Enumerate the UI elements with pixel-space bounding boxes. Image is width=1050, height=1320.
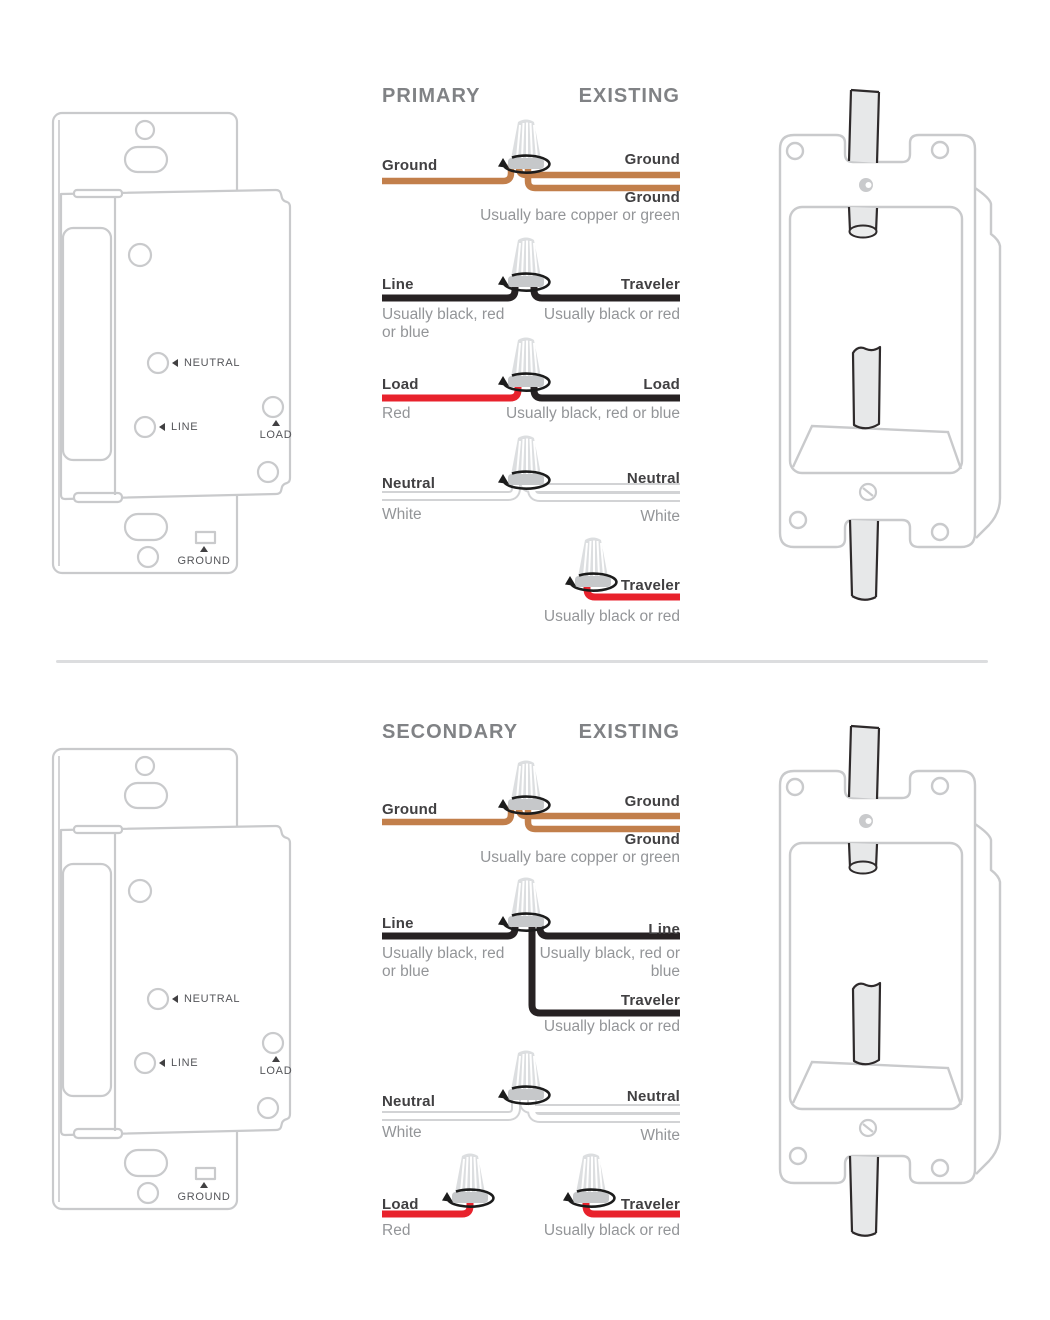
switch-load-terminal-label: LOAD — [256, 1056, 296, 1077]
wire-nut-icon — [442, 1154, 493, 1207]
arrow-up-icon — [200, 546, 208, 552]
electrical-box-illustration — [752, 724, 1012, 1254]
ground-left-label: Ground — [382, 801, 437, 818]
arrow-left-icon — [172, 359, 178, 367]
switch-line-terminal-label: LINE — [159, 421, 198, 433]
wire-nut-icon — [498, 761, 549, 814]
neutral-right-sub: White — [640, 1127, 680, 1145]
ground-sub-label: Usually bare copper or green — [480, 207, 680, 225]
neutral-left-label: Neutral — [382, 475, 435, 492]
ground-right-bottom-label: Ground — [625, 189, 680, 206]
wire-nut-icon — [498, 436, 549, 489]
traveler-right-label: Traveler — [621, 276, 680, 293]
neutral-right-sub: White — [640, 508, 680, 526]
arrow-left-icon — [172, 995, 178, 1003]
line-left-label: Line — [382, 276, 414, 293]
ground-right-top-label: Ground — [625, 151, 680, 168]
line-left-sub: Usually black, red or blue — [382, 306, 517, 342]
load-left-sub: Red — [382, 405, 410, 423]
switch-neutral-terminal-label: NEUTRAL — [172, 993, 240, 1005]
arrow-left-icon — [159, 423, 165, 431]
wire-nut-icon — [498, 238, 549, 291]
ground-right-top-label: Ground — [625, 793, 680, 810]
switch-ground-terminal-label: GROUND — [176, 546, 232, 567]
arrow-up-icon — [272, 420, 280, 426]
arrow-up-icon — [200, 1182, 208, 1188]
arrow-up-icon — [272, 1056, 280, 1062]
wire-nut-icon — [498, 120, 549, 173]
switch-line-terminal-label: LINE — [159, 1057, 198, 1069]
traveler-branch-label: Traveler — [621, 992, 680, 1009]
switch-ground-terminal-label: GROUND — [176, 1182, 232, 1203]
neutral-right-label: Neutral — [627, 470, 680, 487]
traveler-cap-label: Traveler — [621, 577, 680, 594]
wire-nut-icon — [563, 1154, 614, 1207]
line-left-label: Line — [382, 915, 414, 932]
neutral-terminal-text: NEUTRAL — [184, 993, 240, 1005]
load-right-label: Load — [643, 376, 680, 393]
traveler-cap-sub: Usually black or red — [544, 608, 680, 626]
electrical-box-illustration — [752, 88, 1012, 618]
load-cap-label: Load — [382, 1196, 419, 1213]
wire-nut-icon — [565, 538, 616, 591]
neutral-left-label: Neutral — [382, 1093, 435, 1110]
section-divider — [56, 660, 988, 663]
secondary-wiring-diagram: SECONDARY EXISTING — [382, 721, 680, 1266]
line-terminal-text: LINE — [171, 1057, 198, 1069]
traveler-branch-sub: Usually black or red — [544, 1018, 680, 1036]
ground-right-bottom-label: Ground — [625, 831, 680, 848]
load-terminal-text: LOAD — [260, 1065, 293, 1077]
ground-terminal-text: GROUND — [177, 555, 230, 567]
smart-switch-illustration — [40, 110, 320, 590]
smart-switch-illustration — [40, 746, 320, 1226]
wiring-diagram-page: NEUTRAL LINE LOAD GROUND PRIMARY EXISTIN… — [0, 0, 1050, 1320]
neutral-right-label: Neutral — [627, 1088, 680, 1105]
line-left-sub: Usually black, red or blue — [382, 945, 517, 981]
traveler-right-sub: Usually black or red — [544, 306, 680, 324]
ground-terminal-text: GROUND — [177, 1191, 230, 1203]
load-terminal-text: LOAD — [260, 429, 293, 441]
neutral-left-sub: White — [382, 506, 422, 524]
wire-nut-icon — [498, 878, 549, 931]
ground-sub-label: Usually bare copper or green — [480, 849, 680, 867]
neutral-terminal-text: NEUTRAL — [184, 357, 240, 369]
wire-nut-icon — [498, 338, 549, 391]
switch-neutral-terminal-label: NEUTRAL — [172, 357, 240, 369]
wire-nut-icon — [498, 1051, 549, 1104]
traveler-cap-label: Traveler — [621, 1196, 680, 1213]
neutral-left-sub: White — [382, 1124, 422, 1142]
line-terminal-text: LINE — [171, 421, 198, 433]
switch-load-terminal-label: LOAD — [256, 420, 296, 441]
load-cap-sub: Red — [382, 1222, 410, 1240]
arrow-left-icon — [159, 1059, 165, 1067]
line-right-sub: Usually black, red or blue — [530, 945, 680, 981]
primary-wiring-diagram: PRIMARY EXISTING — [382, 85, 680, 645]
ground-left-label: Ground — [382, 157, 437, 174]
load-right-sub: Usually black, red or blue — [506, 405, 680, 423]
line-right-label: Line — [648, 921, 680, 938]
traveler-cap-sub: Usually black or red — [544, 1222, 680, 1240]
load-left-label: Load — [382, 376, 419, 393]
